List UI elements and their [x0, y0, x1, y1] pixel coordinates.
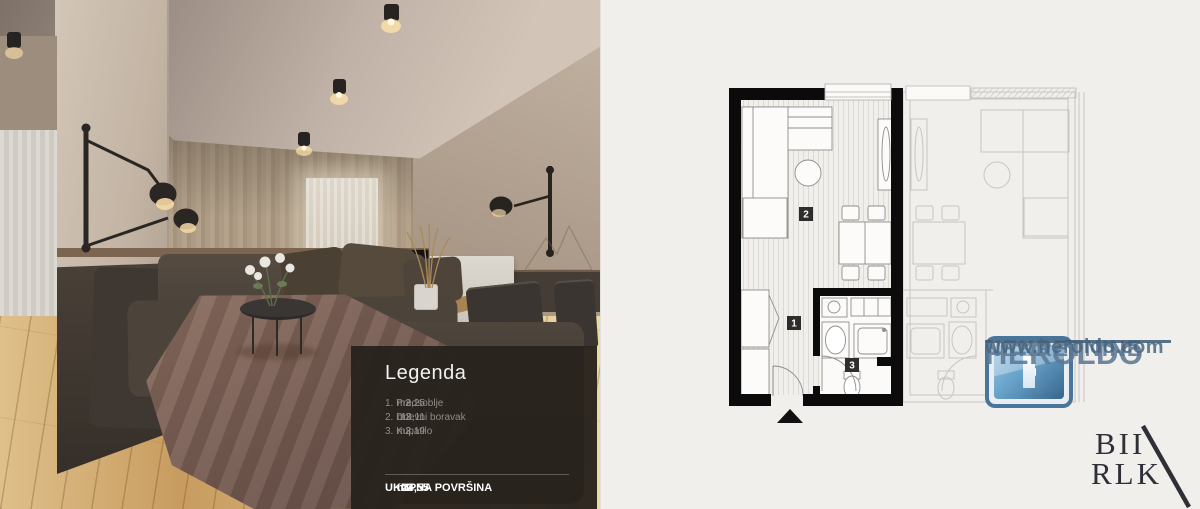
room-label-hallway: 1 — [791, 319, 797, 330]
legend-row: 3. Kupatilo 3,19 m2 — [385, 426, 569, 439]
plan-coffee-table — [795, 160, 821, 186]
plan-chair — [868, 206, 885, 220]
real-estate-listing-image: Legenda 1. Predsoblje 3,25 m2 2. Dnevni … — [0, 0, 1200, 509]
floorplan-panel: 2 1 3 — [600, 0, 1200, 509]
entrance-arrow — [777, 409, 803, 423]
legend-divider — [385, 474, 569, 475]
agency-website: www.heroldo.com — [985, 336, 1164, 359]
plan-chair — [842, 266, 859, 280]
room-label-living: 2 — [803, 210, 809, 221]
area-unit: m2 — [397, 426, 419, 437]
main-unit: 2 1 3 — [729, 84, 903, 423]
hall-closet — [741, 290, 769, 347]
hall-closet — [741, 349, 769, 395]
coffee-table-leg — [300, 314, 302, 354]
legend-box: Legenda 1. Predsoblje 3,25 m2 2. Dnevni … — [351, 346, 597, 509]
interior-render-photo: Legenda 1. Predsoblje 3,25 m2 2. Dnevni … — [0, 0, 600, 509]
coffee-table-leg — [276, 318, 278, 356]
floorplan-drawing: 2 1 3 — [601, 0, 1200, 509]
room-label-bathroom: 3 — [849, 361, 855, 372]
coffee-table — [240, 298, 316, 320]
legend-title: Legenda — [385, 362, 466, 385]
legend-row: 2. Dnevni boravak 18,11 m2 — [385, 412, 569, 425]
plan-chair — [842, 206, 859, 220]
plan-window — [825, 84, 891, 100]
plan-counter — [851, 298, 891, 316]
area-unit: m2 — [397, 482, 419, 494]
coffee-table-leg — [252, 314, 254, 354]
plan-chair — [868, 266, 885, 280]
left-sheer-curtain — [0, 130, 57, 332]
legend-row: 1. Predsoblje 3,25 m2 — [385, 398, 569, 411]
area-unit: m2 — [397, 412, 419, 423]
area-unit: m2 — [397, 398, 419, 409]
plant-pot — [414, 284, 438, 310]
